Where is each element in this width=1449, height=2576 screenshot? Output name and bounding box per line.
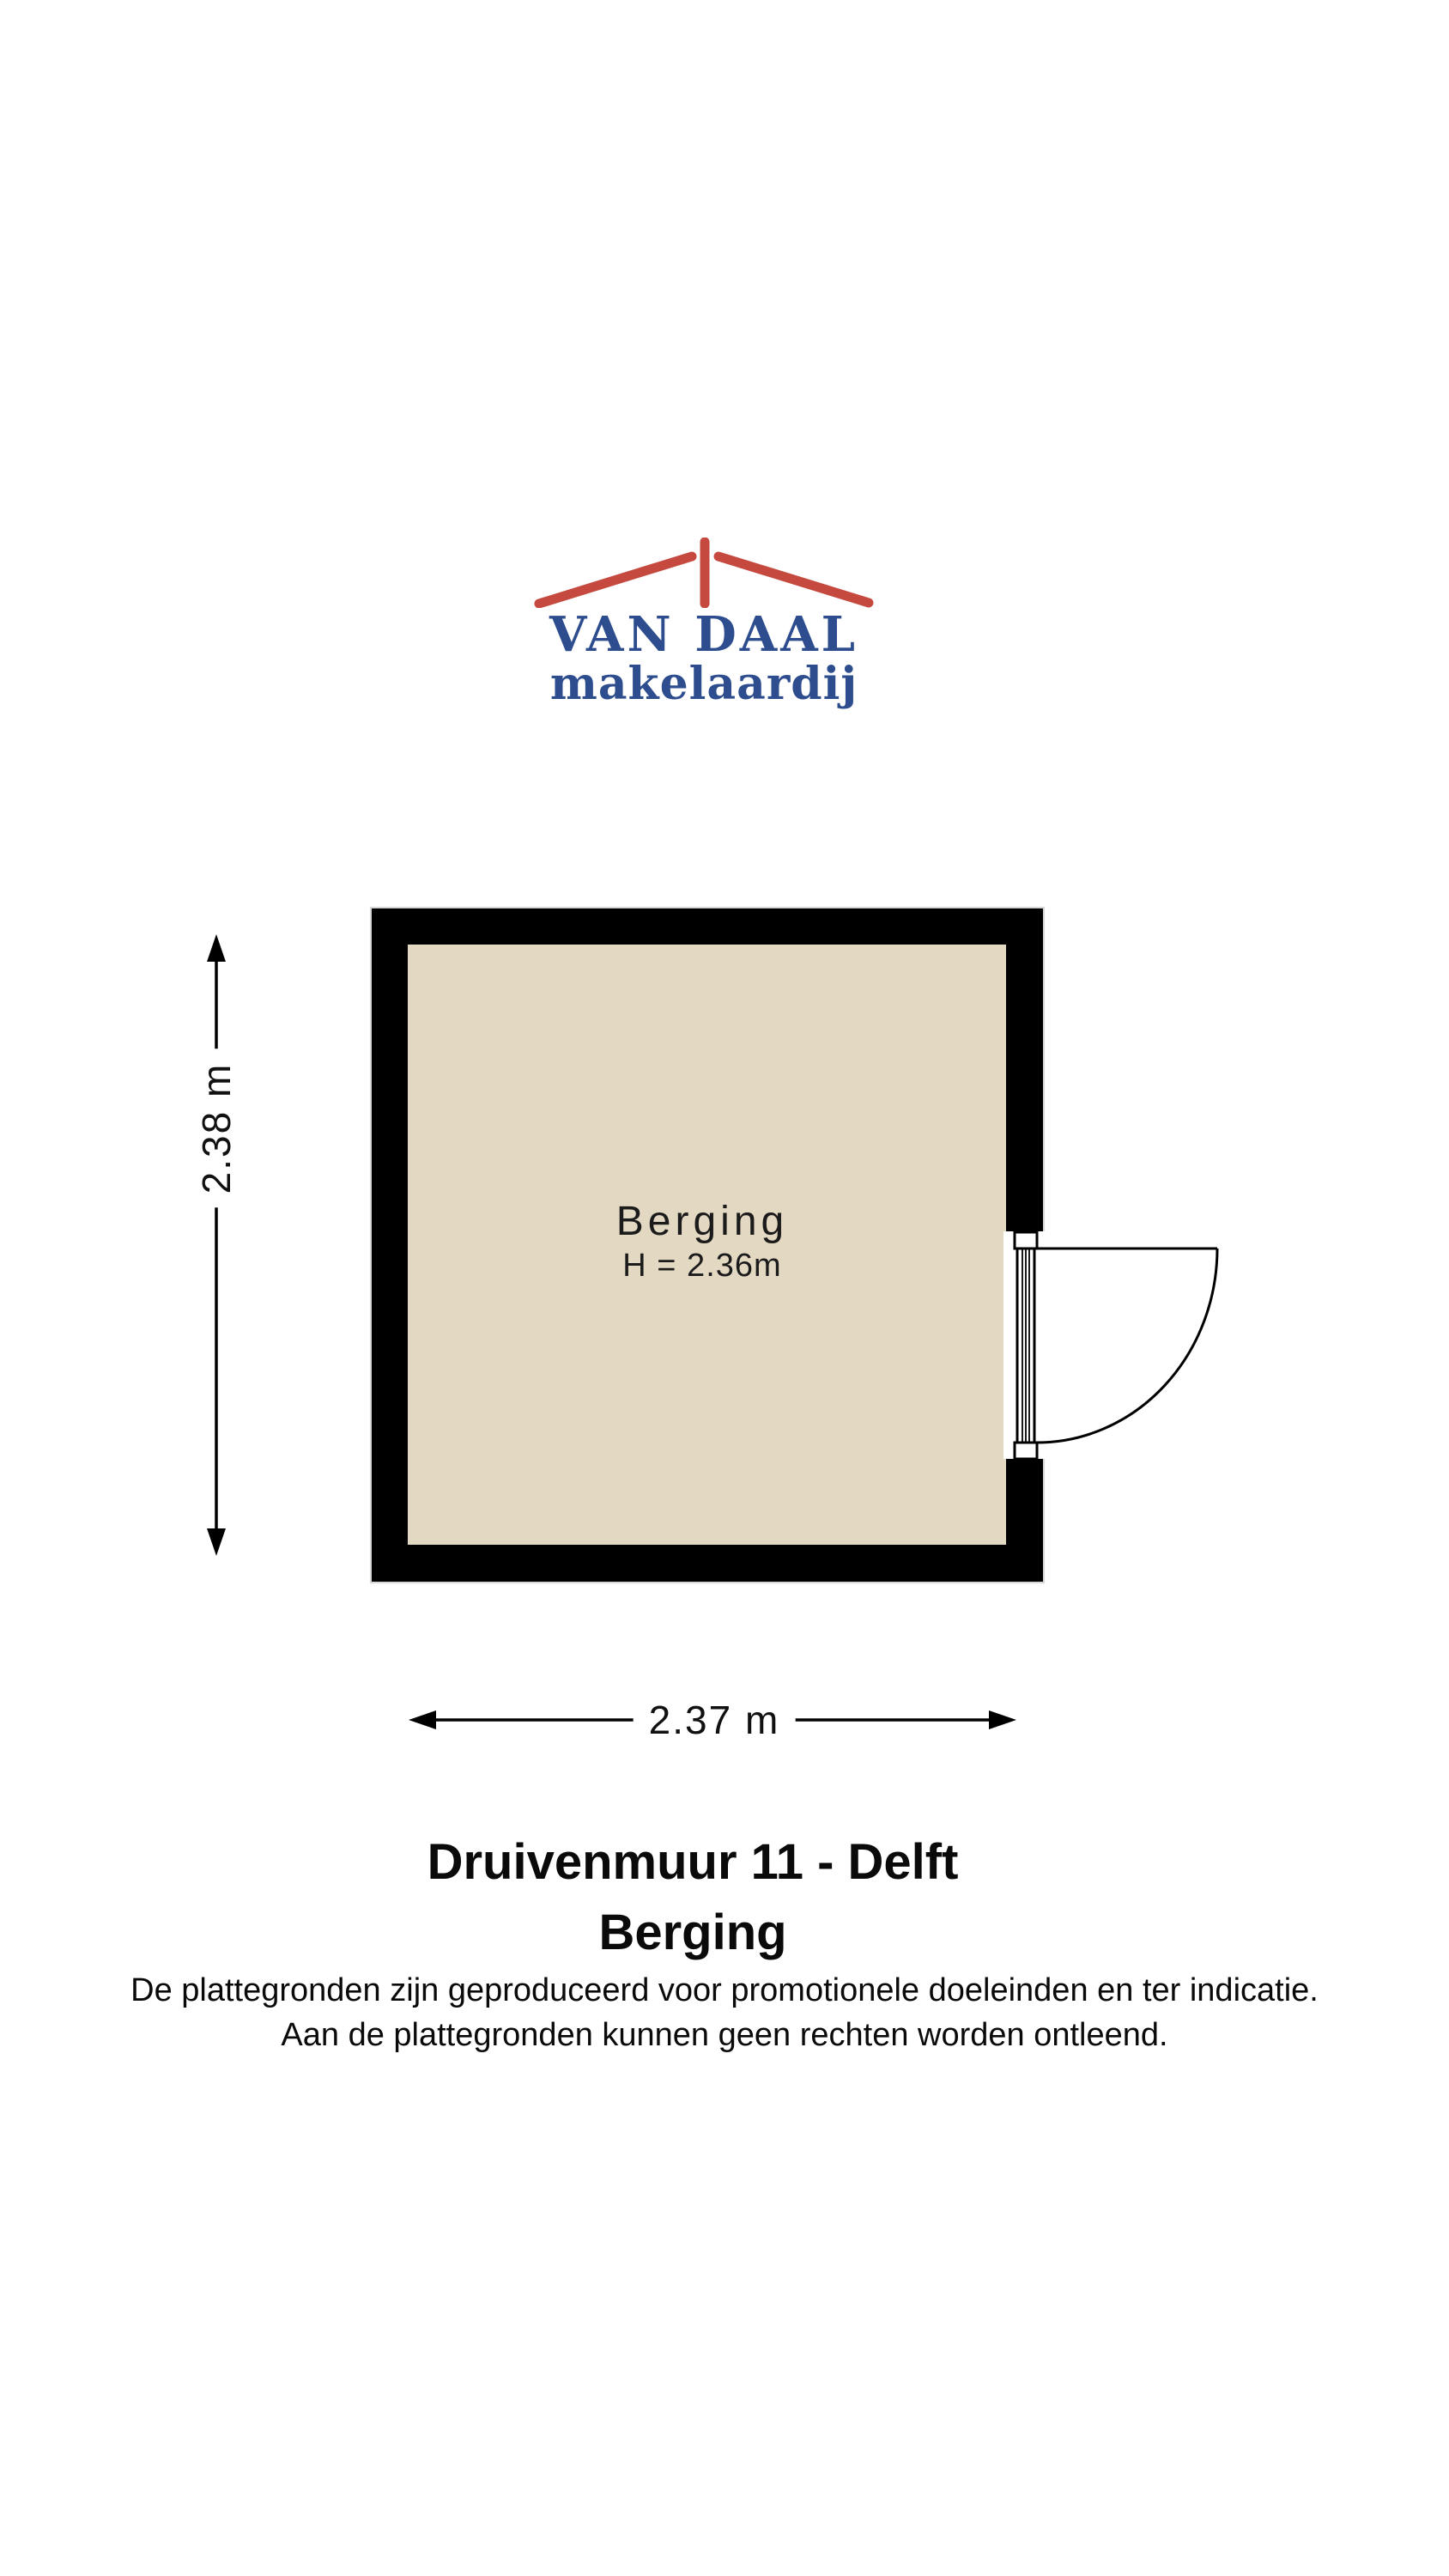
agency-logo: VAN DAAL makelaardij (532, 538, 876, 708)
roof-right-line (718, 556, 869, 603)
disclaimer-line-2: Aan de plattegronden kunnen geen rechten… (0, 2013, 1449, 2057)
height-dimension-label: 2.38 m (186, 1049, 246, 1208)
arrowhead-left-icon (409, 1710, 436, 1729)
logo-subtitle: makelaardij (532, 661, 876, 708)
disclaimer-line-1: De plattegronden zijn geproduceerd voor … (0, 1968, 1449, 2013)
arrowhead-right-icon (989, 1710, 1016, 1729)
roof-icon (532, 538, 876, 608)
disclaimer: De plattegronden zijn geproduceerd voor … (0, 1968, 1449, 2057)
room-name: Berging (616, 1199, 788, 1245)
room-label: Berging H = 2.36m (616, 1199, 788, 1285)
caption: Druivenmuur 11 - Delft Berging (427, 1827, 959, 1968)
logo-name: VAN DAAL (532, 610, 876, 659)
door-frame-top (1015, 1232, 1037, 1249)
caption-room: Berging (427, 1898, 959, 1968)
arrowhead-up-icon (207, 934, 226, 962)
caption-address: Druivenmuur 11 - Delft (427, 1827, 959, 1898)
height-dimension-arrow (197, 933, 235, 1558)
door-arc (1037, 1249, 1217, 1443)
door-frame-bottom (1015, 1443, 1037, 1459)
door-swing-icon (996, 1219, 1245, 1468)
roof-left-line (539, 556, 692, 604)
arrowhead-down-icon (207, 1528, 226, 1556)
width-dimension-label: 2.37 m (634, 1695, 796, 1745)
floorplan-page: VAN DAAL makelaardij Berging H = 2.36m 2… (0, 0, 1449, 2576)
room-ceiling-height: H = 2.36m (616, 1247, 788, 1285)
